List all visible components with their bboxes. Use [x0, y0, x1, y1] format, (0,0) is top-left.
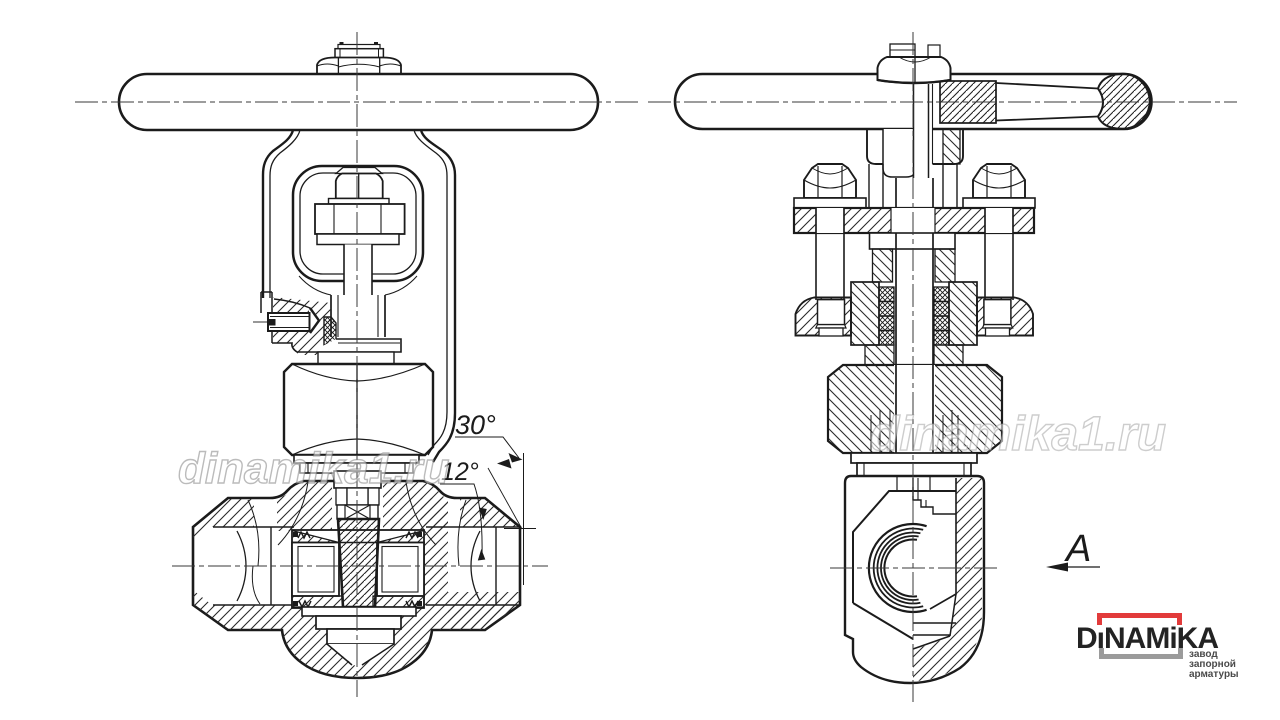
svg-text:арматуры: арматуры — [1189, 669, 1239, 680]
svg-text:dinamika1.ru: dinamika1.ru — [178, 444, 450, 493]
svg-text:30°: 30° — [455, 410, 496, 440]
svg-text:A: A — [1064, 528, 1091, 570]
svg-text:dinamika1.ru: dinamika1.ru — [870, 408, 1166, 461]
